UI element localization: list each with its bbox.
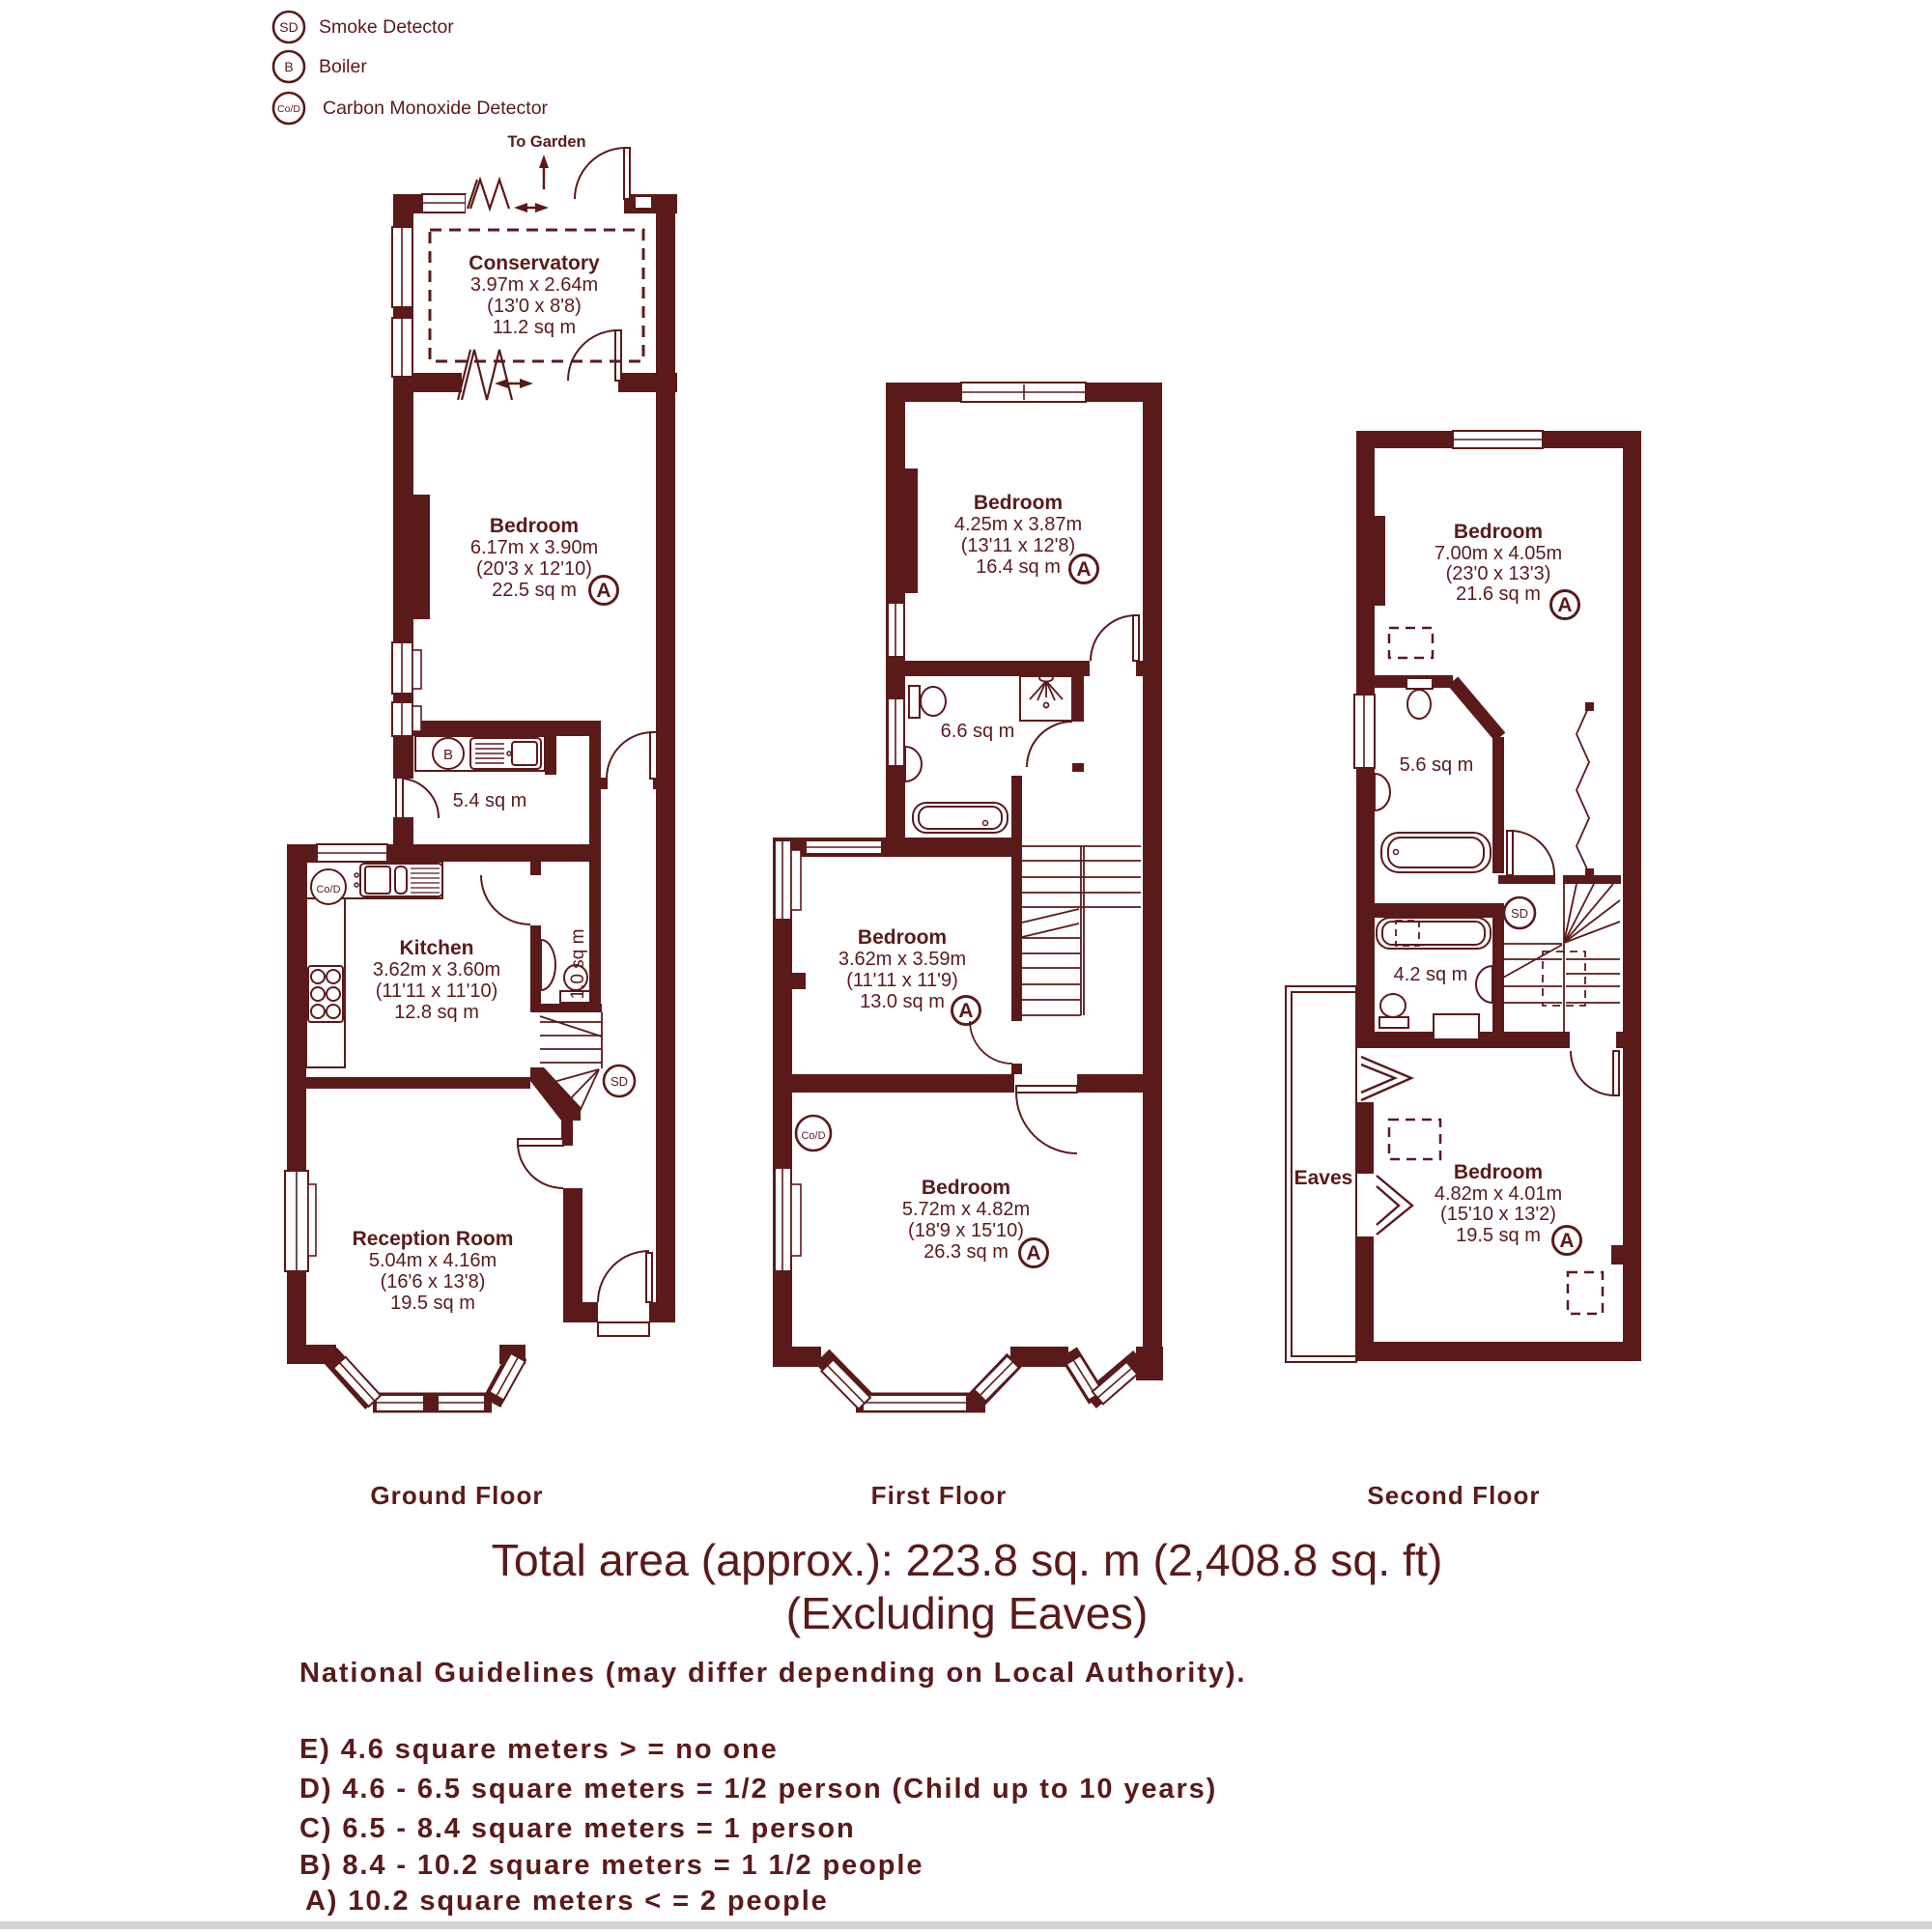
- svg-text:B) 8.4 - 10.2 square meters =: B) 8.4 - 10.2 square meters = 1 1/2 peop…: [299, 1850, 923, 1881]
- svg-text:A) 10.2 square meters < = 2 pe: A) 10.2 square meters < = 2 people: [305, 1886, 829, 1917]
- svg-text:B: B: [443, 747, 453, 763]
- svg-text:Second Floor: Second Floor: [1367, 1481, 1540, 1510]
- svg-text:Kitchen: Kitchen: [399, 937, 473, 959]
- svg-text:13.0 sq m: 13.0 sq m: [860, 991, 945, 1012]
- svg-text:1.0 sq m: 1.0 sq m: [568, 929, 588, 1000]
- svg-text:First Floor: First Floor: [871, 1481, 1008, 1510]
- svg-text:5.4 sq m: 5.4 sq m: [453, 790, 527, 811]
- svg-text:SD: SD: [1511, 906, 1528, 921]
- svg-text:6.17m x 3.90m: 6.17m x 3.90m: [470, 537, 598, 558]
- svg-text:Bedroom: Bedroom: [1454, 1161, 1543, 1183]
- svg-text:Co/D: Co/D: [801, 1130, 825, 1142]
- svg-text:16.4 sq m: 16.4 sq m: [976, 556, 1061, 578]
- svg-text:Bedroom: Bedroom: [1454, 521, 1543, 543]
- svg-text:(23'0 x 13'3): (23'0 x 13'3): [1446, 563, 1551, 584]
- svg-text:Co/D: Co/D: [316, 884, 340, 895]
- svg-text:(16'6 x 13'8): (16'6 x 13'8): [381, 1271, 486, 1293]
- svg-text:National Guidelines (may diffe: National Guidelines (may differ dependin…: [299, 1658, 1246, 1689]
- svg-text:11.2 sq m: 11.2 sq m: [493, 317, 576, 338]
- svg-text:3.62m x 3.60m: 3.62m x 3.60m: [373, 959, 500, 980]
- svg-text:C) 6.5 - 8.4 square meters = 1: C) 6.5 - 8.4 square meters = 1 person: [299, 1813, 856, 1844]
- svg-text:5.6 sq m: 5.6 sq m: [1400, 754, 1474, 776]
- svg-text:5.72m x 4.82m: 5.72m x 4.82m: [902, 1199, 1030, 1220]
- svg-text:4.25m x 3.87m: 4.25m x 3.87m: [954, 514, 1082, 535]
- svg-text:Bedroom: Bedroom: [922, 1177, 1010, 1199]
- svg-text:(13'0 x 8'8): (13'0 x 8'8): [487, 296, 582, 317]
- svg-text:D) 4.6 - 6.5 square meters = 1: D) 4.6 - 6.5 square meters = 1/2 person …: [299, 1774, 1217, 1804]
- svg-text:12.8 sq m: 12.8 sq m: [394, 1002, 479, 1023]
- svg-text:19.5 sq m: 19.5 sq m: [390, 1293, 475, 1314]
- svg-text:22.5 sq m: 22.5 sq m: [492, 580, 577, 601]
- svg-text:(20'3 x 12'10): (20'3 x 12'10): [476, 558, 592, 580]
- svg-text:5.04m x 4.16m: 5.04m x 4.16m: [369, 1250, 497, 1271]
- svg-text:Carbon Monoxide Detector: Carbon Monoxide Detector: [323, 98, 549, 119]
- svg-text:Bedroom: Bedroom: [974, 492, 1063, 514]
- svg-text:Bedroom: Bedroom: [858, 926, 947, 949]
- svg-text:7.00m x 4.05m: 7.00m x 4.05m: [1435, 543, 1562, 564]
- svg-text:(11'11 x 11'10): (11'11 x 11'10): [376, 980, 498, 1002]
- svg-text:Co/D: Co/D: [277, 103, 300, 115]
- svg-text:Eaves: Eaves: [1294, 1167, 1353, 1189]
- svg-text:To Garden: To Garden: [507, 133, 585, 151]
- svg-text:6.6 sq m: 6.6 sq m: [941, 721, 1015, 742]
- svg-text:4.82m x 4.01m: 4.82m x 4.01m: [1435, 1183, 1562, 1205]
- svg-text:Reception Room: Reception Room: [353, 1228, 514, 1250]
- svg-text:(Excluding Eaves): (Excluding Eaves): [786, 1588, 1149, 1638]
- svg-text:Bedroom: Bedroom: [490, 515, 579, 537]
- svg-text:(13'11 x 12'8): (13'11 x 12'8): [961, 535, 1075, 556]
- svg-text:19.5 sq m: 19.5 sq m: [1456, 1225, 1541, 1246]
- svg-text:SD: SD: [279, 19, 298, 35]
- svg-text:(18'9 x 15'10): (18'9 x 15'10): [908, 1220, 1024, 1241]
- svg-text:B: B: [284, 59, 293, 74]
- svg-text:3.97m x 2.64m: 3.97m x 2.64m: [470, 274, 598, 296]
- svg-text:Total area (approx.): 223.8 sq: Total area (approx.): 223.8 sq. m (2,408…: [492, 1535, 1443, 1585]
- svg-text:3.62m x 3.59m: 3.62m x 3.59m: [838, 949, 966, 970]
- svg-text:4.2 sq m: 4.2 sq m: [1394, 964, 1468, 985]
- svg-text:26.3 sq m: 26.3 sq m: [923, 1241, 1009, 1263]
- svg-text:Boiler: Boiler: [319, 56, 367, 77]
- svg-text:Ground Floor: Ground Floor: [370, 1481, 543, 1510]
- svg-text:SD: SD: [611, 1074, 628, 1089]
- svg-text:21.6 sq m: 21.6 sq m: [1456, 583, 1541, 605]
- svg-text:(11'11 x 11'9): (11'11 x 11'9): [846, 970, 957, 991]
- svg-text:Conservatory: Conservatory: [469, 252, 600, 274]
- svg-text:Smoke Detector: Smoke Detector: [319, 16, 454, 38]
- svg-text:E) 4.6 square meters > = no on: E) 4.6 square meters > = no one: [299, 1734, 779, 1765]
- svg-text:(15'10 x 13'2): (15'10 x 13'2): [1440, 1204, 1556, 1225]
